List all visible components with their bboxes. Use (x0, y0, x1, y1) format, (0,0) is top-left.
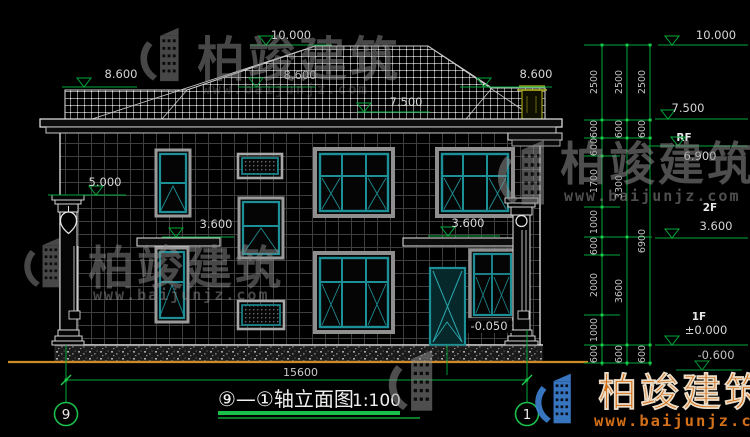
svg-text:±0.000: ±0.000 (685, 323, 728, 337)
svg-text:8.600: 8.600 (520, 67, 553, 81)
title-text: ⑨—①轴立面图 (218, 387, 354, 411)
svg-text:3.600: 3.600 (452, 216, 485, 230)
svg-text:1: 1 (523, 407, 532, 423)
foundation-hatch (55, 346, 542, 361)
svg-text:2500: 2500 (637, 70, 648, 94)
svg-text:600: 600 (589, 237, 600, 255)
svg-text:600: 600 (614, 345, 625, 363)
eave-cornice (40, 119, 562, 133)
svg-text:600: 600 (589, 120, 600, 138)
svg-text:1000: 1000 (589, 210, 600, 234)
level-marker-roof-left: 8.600 (62, 67, 137, 87)
window-2f-vent-left (238, 154, 282, 178)
window-2f-center (315, 149, 393, 216)
svg-text:6900: 6900 (637, 229, 648, 253)
svg-text:柏竣建筑: 柏竣建筑 (197, 32, 401, 88)
svg-text:3.600: 3.600 (700, 219, 733, 233)
svg-text:9: 9 (62, 407, 71, 423)
right-level-3600: 3.600 (655, 219, 748, 238)
window-1f-vent-left (238, 301, 284, 329)
svg-text:5.000: 5.000 (89, 175, 122, 189)
svg-text:柏竣建筑: 柏竣建筑 (598, 371, 750, 416)
axis-bubble-left: 9 (55, 403, 78, 426)
level-marker-entrance: -0.050 (466, 318, 512, 333)
window-2f-tall-left (156, 150, 190, 216)
cad-elevation-canvas[interactable]: 10.000 8.600 8.600 8.600 7.500 5.000 3.6… (0, 0, 750, 437)
right-level-7500: 7.500 (655, 101, 748, 119)
watermark-top-center: 柏竣建筑 www.baijunjz.com (140, 28, 401, 98)
svg-text:15600: 15600 (283, 366, 318, 379)
svg-text:10.000: 10.000 (696, 28, 736, 42)
lamp-right (516, 216, 527, 227)
svg-text:600: 600 (637, 345, 648, 363)
svg-text:7.500: 7.500 (672, 101, 705, 115)
title-underline-2 (218, 417, 420, 419)
right-level-0000: ±0.000 (655, 323, 748, 345)
svg-text:柏竣建筑: 柏竣建筑 (560, 137, 750, 191)
svg-text:1000: 1000 (589, 318, 600, 342)
svg-text:www.baijunjz.com: www.baijunjz.com (93, 286, 270, 304)
title-underline (218, 411, 400, 415)
entrance-door (430, 268, 465, 345)
chimney (517, 86, 547, 119)
chain2-values: 2500 600 3300 3600 600 (614, 70, 625, 363)
svg-text:3.600: 3.600 (200, 217, 233, 231)
svg-text:3600: 3600 (614, 279, 625, 303)
svg-text:600: 600 (614, 120, 625, 138)
svg-text:www.baijunjz.com: www.baijunjz.com (564, 187, 741, 205)
watermark-right-upper: 柏竣建筑 www.baijunjz.com (498, 137, 750, 205)
svg-text:600: 600 (589, 345, 600, 363)
window-1f-center (315, 253, 393, 332)
chain1-values: 2500 600 600 1700 1000 600 2000 1000 600 (589, 70, 600, 363)
svg-text:www.baijunjz.com: www.baijunjz.com (594, 412, 750, 430)
svg-text:600: 600 (637, 120, 648, 138)
right-level-10000: 10.000 (658, 28, 748, 45)
svg-text:2500: 2500 (614, 70, 625, 94)
axis-bubble-right: 1 (516, 403, 539, 426)
right-floor-1f: 1F (692, 311, 706, 323)
canopy-right (403, 238, 516, 246)
svg-text:8.600: 8.600 (105, 67, 138, 81)
svg-text:-0.050: -0.050 (470, 319, 507, 333)
chain3-values: 2500 600 6900 600 (637, 70, 648, 363)
svg-text:7.500: 7.500 (390, 95, 423, 109)
right-level-ground: -0.600 (676, 348, 742, 370)
svg-text:2500: 2500 (589, 70, 600, 94)
svg-text:2000: 2000 (589, 273, 600, 297)
svg-text:-0.600: -0.600 (697, 348, 734, 362)
svg-text:www.baijunjz.com: www.baijunjz.com (202, 82, 369, 98)
elevation-drawing: 10.000 8.600 8.600 8.600 7.500 5.000 3.6… (0, 0, 750, 437)
window-1f-right (470, 250, 515, 319)
